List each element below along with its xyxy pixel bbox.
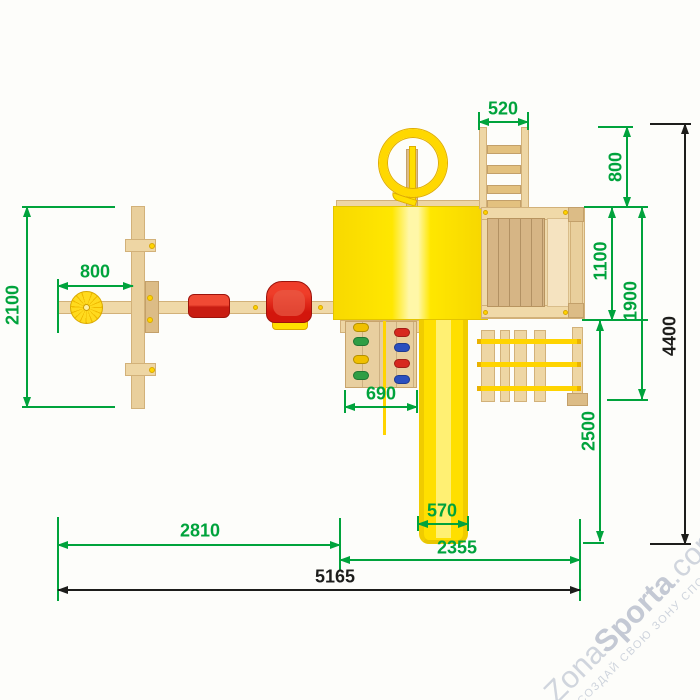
disc-swing-center	[83, 304, 90, 311]
platform-right-rail	[570, 210, 583, 316]
dimension-4400-label: 4400	[660, 316, 681, 356]
flat-swing-seat	[188, 294, 230, 318]
platform-post	[568, 303, 584, 318]
climbing-hold-yellow	[353, 323, 369, 332]
ladder-rail	[521, 127, 529, 209]
platform-bolt	[563, 210, 568, 215]
frame-bolt	[147, 317, 153, 323]
platform-bolt	[563, 310, 568, 315]
dimension-570-label: 570	[427, 501, 457, 522]
tower-roof	[333, 206, 488, 320]
dimension-800-left-label: 800	[80, 262, 110, 283]
frame-bolt	[149, 243, 155, 249]
climbing-hold-red	[394, 359, 410, 368]
dimension-520-label: 520	[488, 99, 518, 120]
platform-deck	[487, 218, 545, 307]
climbing-hold-green	[353, 371, 369, 380]
climbing-rope	[383, 321, 386, 435]
dimension-1100-label: 1100	[591, 241, 612, 280]
dimension-5165-label: 5165	[315, 567, 355, 588]
beam-bolt	[253, 305, 258, 310]
frame-bolt	[147, 295, 153, 301]
climbing-hold-blue	[394, 375, 410, 384]
dimension-690-label: 690	[366, 384, 396, 405]
ladder-rail	[479, 127, 487, 209]
net-rope	[477, 386, 581, 391]
watermark-brand-zona: Zona	[537, 635, 612, 700]
watermark-brand-tld: .com	[656, 518, 700, 590]
ladder-rung	[487, 185, 521, 194]
frame-bolt	[149, 367, 155, 373]
beam-bolt	[318, 305, 323, 310]
swing-a-frame-brace	[145, 281, 159, 333]
watermark-brand-sporta: Sporta	[587, 565, 681, 659]
dimension-2355-label: 2355	[437, 538, 477, 559]
dimension-2500-label: 2500	[579, 411, 600, 451]
platform-bolt	[483, 310, 488, 315]
platform-post	[568, 207, 584, 222]
climbing-hold-green	[353, 337, 369, 346]
watermark-tagline: СОЗДАЙ СВОЮ ЗОНУ СПОРТА	[526, 507, 700, 700]
basketball-ring	[379, 129, 447, 197]
platform-bolt	[483, 210, 488, 215]
net-rope	[477, 339, 581, 344]
platform-side-plank	[547, 218, 569, 307]
dimension-2100-label: 2100	[3, 285, 24, 325]
net-corner-block	[567, 393, 588, 406]
ladder-rung	[487, 145, 521, 154]
dimension-2810-label: 2810	[180, 521, 220, 542]
climbing-hold-red	[394, 328, 410, 337]
swing-a-frame-leg	[131, 206, 145, 409]
dimension-800-right-label: 800	[606, 152, 627, 182]
drawing-canvas: 520 800 2100 690 570 2810 2355 5165	[0, 0, 700, 700]
net-rope	[477, 362, 581, 367]
dimension-1900-label: 1900	[621, 281, 642, 321]
baby-swing-inner	[273, 290, 305, 316]
climbing-hold-blue	[394, 343, 410, 352]
ladder-rung	[487, 165, 521, 174]
climbing-hold-yellow	[353, 355, 369, 364]
